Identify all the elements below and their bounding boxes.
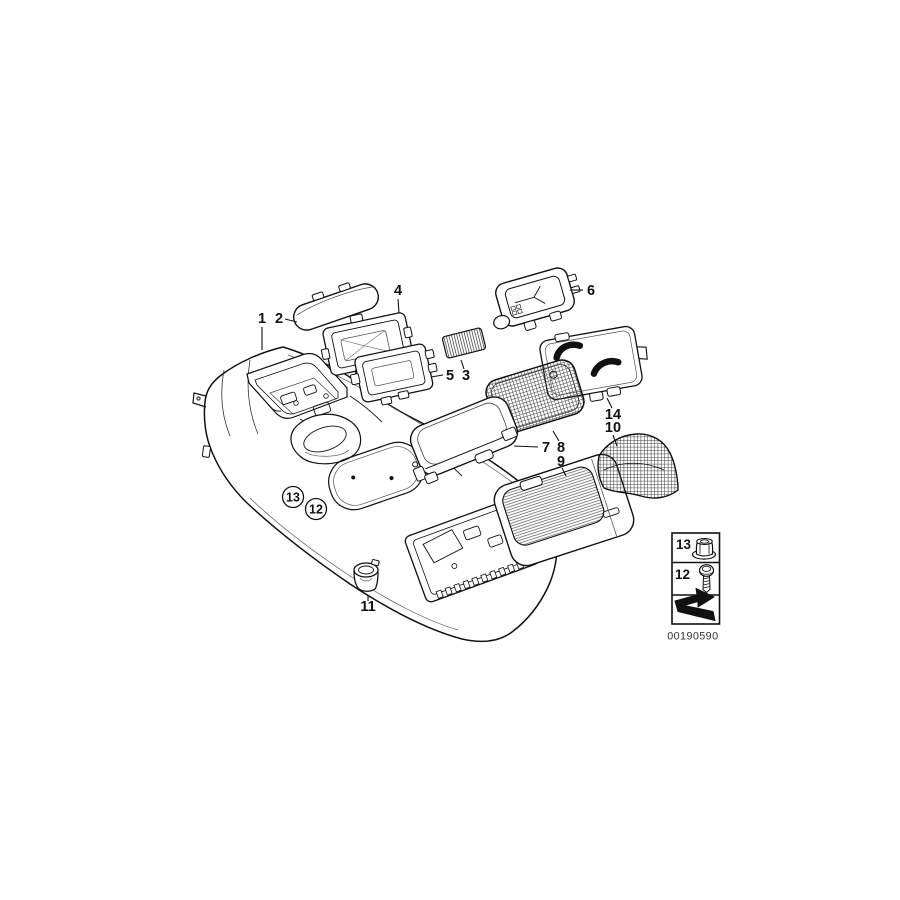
callout-7[interactable]: 7 [542,440,550,456]
svg-text:12: 12 [309,503,323,517]
part-phone-cradle-drawing [484,263,587,338]
callout-4[interactable]: 4 [394,283,402,299]
svg-text:13: 13 [676,537,692,552]
callout-11[interactable]: 11 [360,599,375,615]
callout-9[interactable]: 9 [557,454,565,470]
callout-circled-12[interactable]: 12 [306,499,327,520]
image-number: 00190590 [667,631,718,643]
legend-box: 13 12 [672,533,720,624]
part-curved-mat-drawing [598,434,678,498]
parts-diagram-canvas: 1 2 4 6 5 3 7 8 9 14 10 11 13 12 13 12 [0,0,900,900]
callout-2[interactable]: 2 [275,311,283,327]
callout-10[interactable]: 10 [605,420,621,436]
callout-6[interactable]: 6 [587,283,595,299]
svg-text:12: 12 [675,567,690,582]
svg-text:13: 13 [286,491,300,505]
callout-3[interactable]: 3 [462,368,470,384]
part-small-mat-drawing [442,327,486,358]
callout-5[interactable]: 5 [446,368,454,384]
callout-1[interactable]: 1 [258,311,266,327]
exploded-view-drawing: 1 2 4 6 5 3 7 8 9 14 10 11 13 12 13 12 [0,0,900,900]
callout-circled-13[interactable]: 13 [283,487,304,508]
console-cupholder-recess [291,414,361,464]
